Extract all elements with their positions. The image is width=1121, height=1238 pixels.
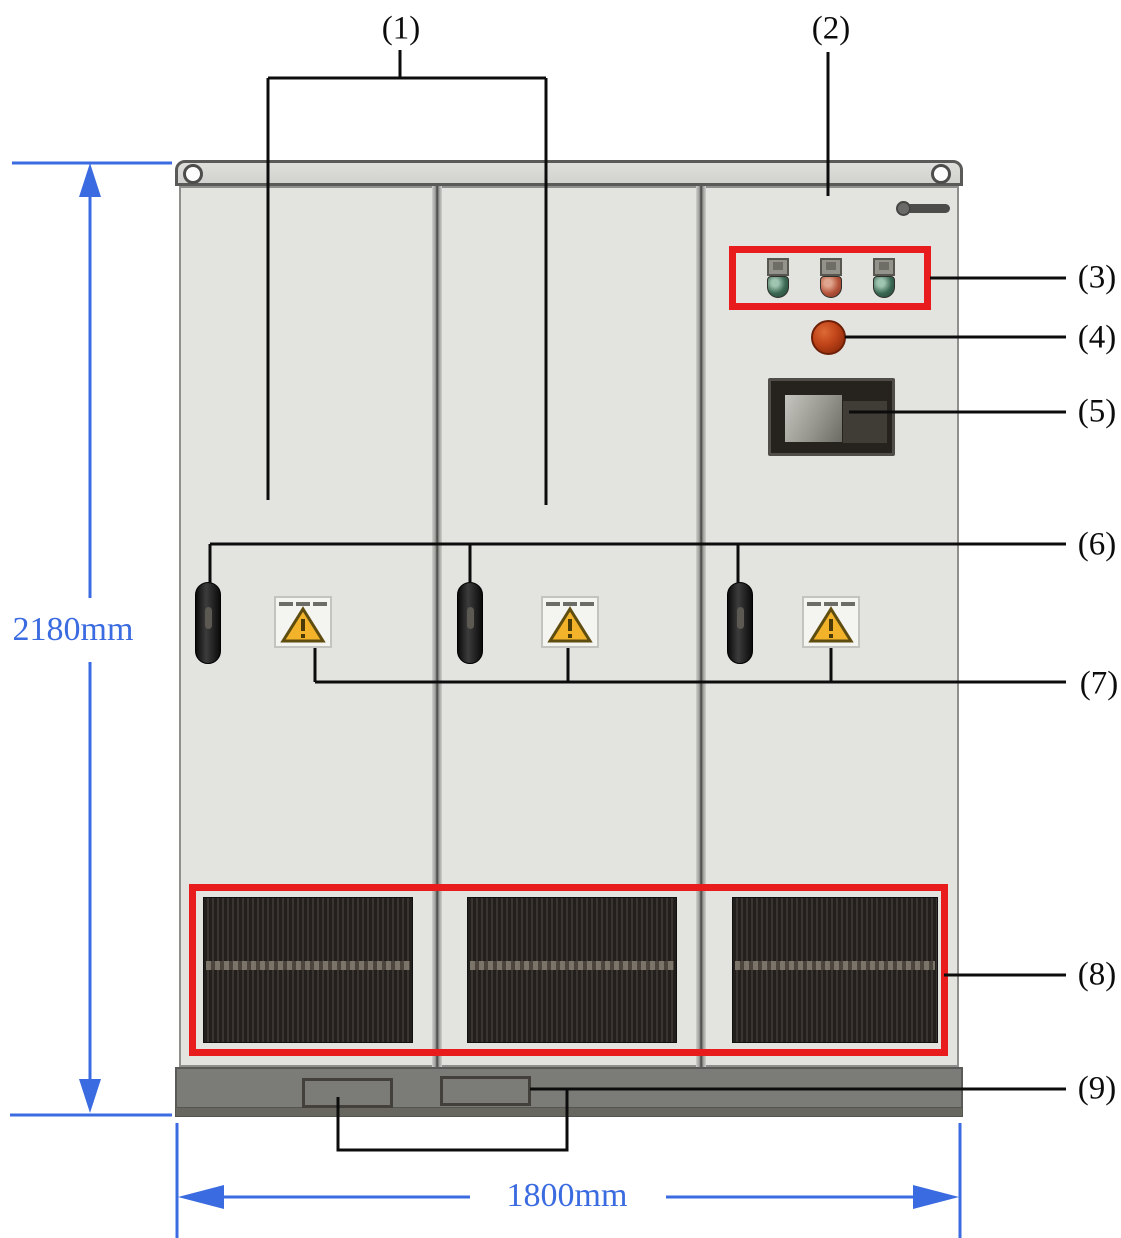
- indicator-cap: [767, 258, 789, 276]
- cabinet-base: [175, 1067, 963, 1109]
- callout-label-1: (1): [382, 13, 420, 46]
- cable-entry-icon: [440, 1076, 531, 1106]
- door-handle-icon: [457, 582, 483, 664]
- cabinet-base-lip: [175, 1107, 963, 1117]
- warning-triangle-icon: [547, 606, 593, 644]
- brand-logo-icon: [906, 204, 950, 213]
- warning-triangle-icon: [280, 606, 326, 644]
- callout-label-4: (4): [1078, 322, 1116, 355]
- width-dimension-label: 1800mm: [501, 1179, 634, 1213]
- cabinet-dimension-diagram: (1) (2) (3) (4) (5) (6) (7) (8) (9) 2180…: [0, 0, 1121, 1238]
- indicator-light-icon: [873, 258, 895, 298]
- arrow-up-icon: [79, 163, 101, 197]
- callout-label-6: (6): [1078, 529, 1116, 562]
- indicator-lens-red: [820, 276, 842, 298]
- callout-label-7: (7): [1080, 668, 1118, 701]
- indicator-light-icon: [820, 258, 842, 298]
- callout-label-9: (9): [1078, 1073, 1116, 1106]
- door-handle-icon: [195, 582, 221, 664]
- indicator-light-icon: [767, 258, 789, 298]
- cabinet-top-rail: [175, 160, 963, 186]
- ventilation-grille-icon: [467, 897, 677, 1043]
- display-panel: [843, 401, 887, 443]
- hmi-display-icon: [768, 378, 895, 456]
- ventilation-grille-icon: [732, 897, 938, 1043]
- lifting-hole-icon: [183, 164, 203, 184]
- warning-label: [541, 596, 599, 648]
- indicator-cap: [820, 258, 842, 276]
- indicator-cap: [873, 258, 895, 276]
- warning-triangle-icon: [808, 606, 854, 644]
- height-dimension-label: 2180mm: [7, 613, 140, 647]
- emergency-stop-icon: [811, 320, 846, 355]
- callout-label-3: (3): [1078, 262, 1116, 295]
- lifting-hole-icon: [931, 164, 951, 184]
- cable-entry-icon: [302, 1078, 393, 1108]
- indicator-lens-green: [767, 276, 789, 298]
- callout-label-8: (8): [1078, 959, 1116, 992]
- indicator-lens-green: [873, 276, 895, 298]
- callout-label-5: (5): [1078, 396, 1116, 429]
- door-handle-icon: [727, 582, 753, 664]
- arrow-down-icon: [79, 1079, 101, 1113]
- arrow-left-icon: [178, 1185, 224, 1209]
- callout-label-2: (2): [812, 13, 850, 46]
- display-glare: [785, 395, 842, 442]
- ventilation-grille-icon: [203, 897, 413, 1043]
- warning-label: [802, 596, 860, 648]
- arrow-right-icon: [913, 1185, 959, 1209]
- warning-label: [274, 596, 332, 648]
